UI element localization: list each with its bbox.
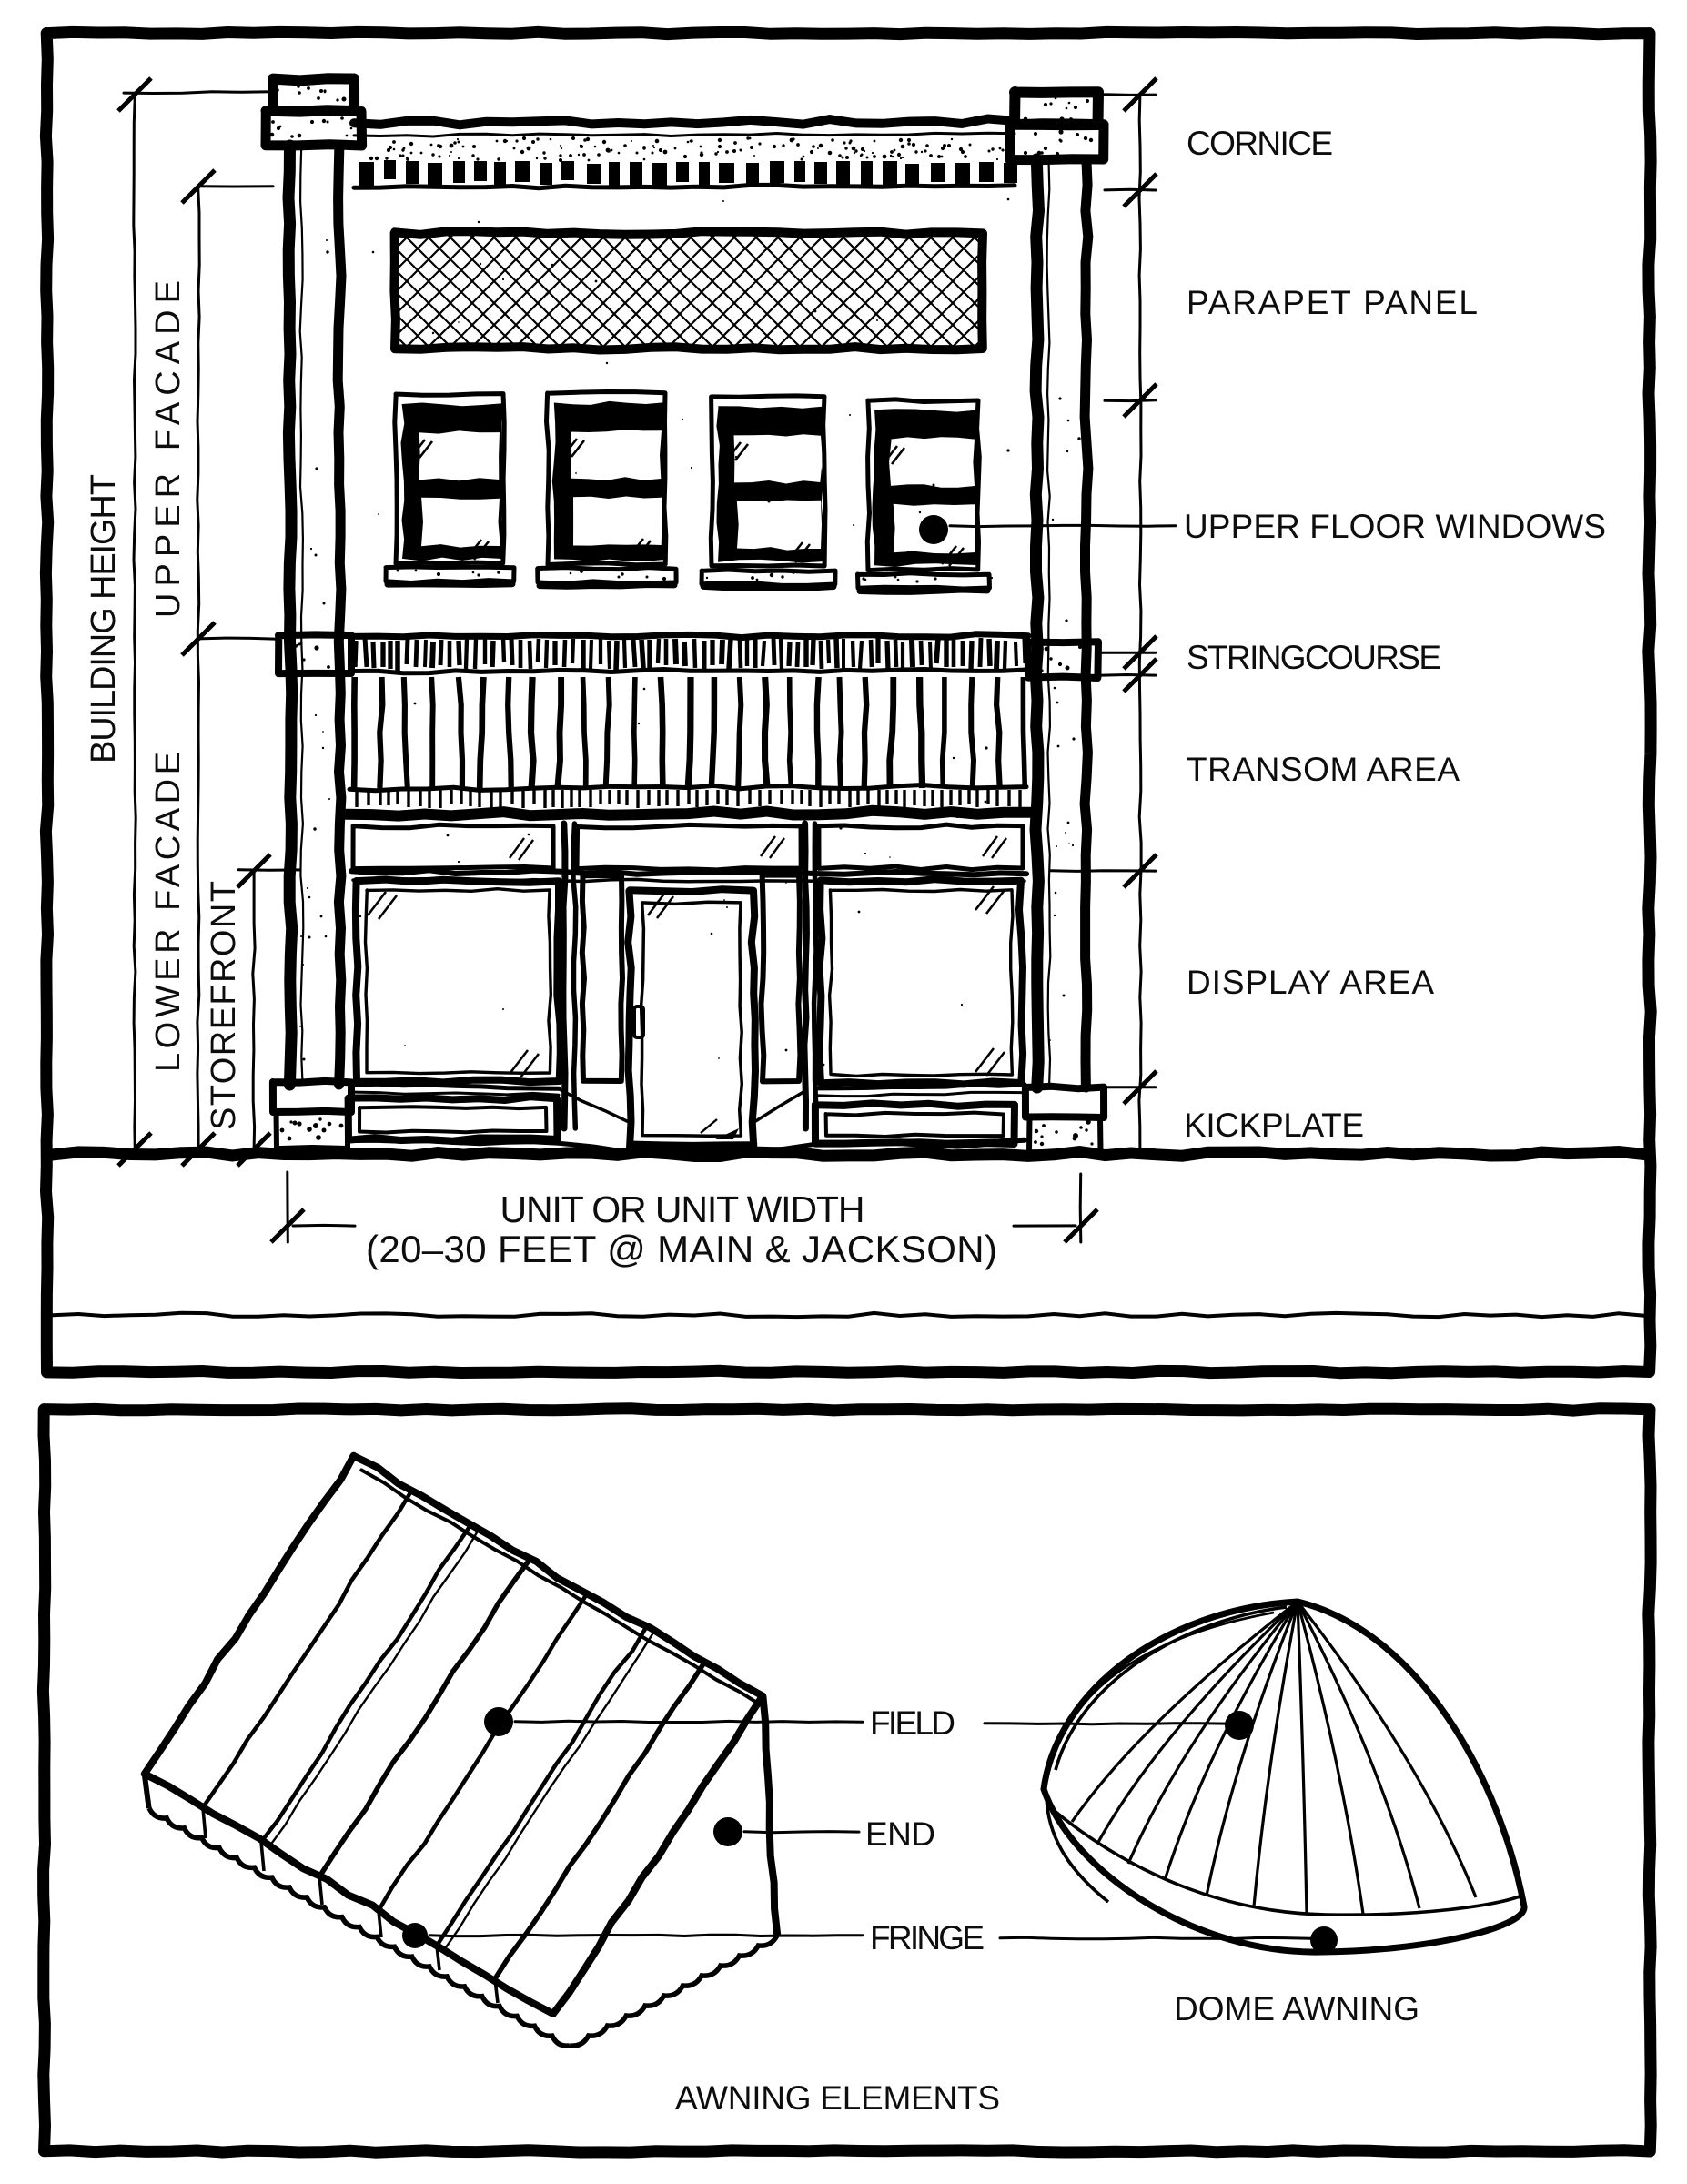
svg-text:CORNICE: CORNICE (1187, 125, 1333, 162)
svg-text:UNIT OR UNIT WIDTH: UNIT OR UNIT WIDTH (500, 1188, 865, 1230)
svg-text:DISPLAY AREA: DISPLAY AREA (1187, 964, 1434, 1001)
svg-text:PARAPET PANEL: PARAPET PANEL (1187, 284, 1478, 321)
svg-text:STOREFRONT: STOREFRONT (205, 881, 243, 1130)
svg-text:AWNING ELEMENTS: AWNING ELEMENTS (675, 2079, 1000, 2117)
svg-text:DOME AWNING: DOME AWNING (1174, 1990, 1419, 2027)
svg-text:(20–30 FEET @ MAIN & JACK: (20–30 FEET @ MAIN & JACKSON) (366, 1228, 997, 1270)
svg-text:TRANSOM AREA: TRANSOM AREA (1187, 751, 1460, 788)
svg-text:END: END (865, 1815, 935, 1853)
svg-text:KICKPLATE: KICKPLATE (1184, 1107, 1364, 1144)
svg-text:BUILDING HEIGHT: BUILDING HEIGHT (85, 474, 123, 763)
svg-text:FIELD: FIELD (870, 1704, 955, 1742)
svg-text:UPPER FLOOR WINDOWS: UPPER FLOOR WINDOWS (1184, 508, 1606, 545)
svg-text:UPPER FACADE: UPPER FACADE (149, 280, 187, 618)
svg-text:FRINGE: FRINGE (870, 1919, 985, 1956)
svg-text:STRINGCOURSE: STRINGCOURSE (1187, 639, 1441, 676)
